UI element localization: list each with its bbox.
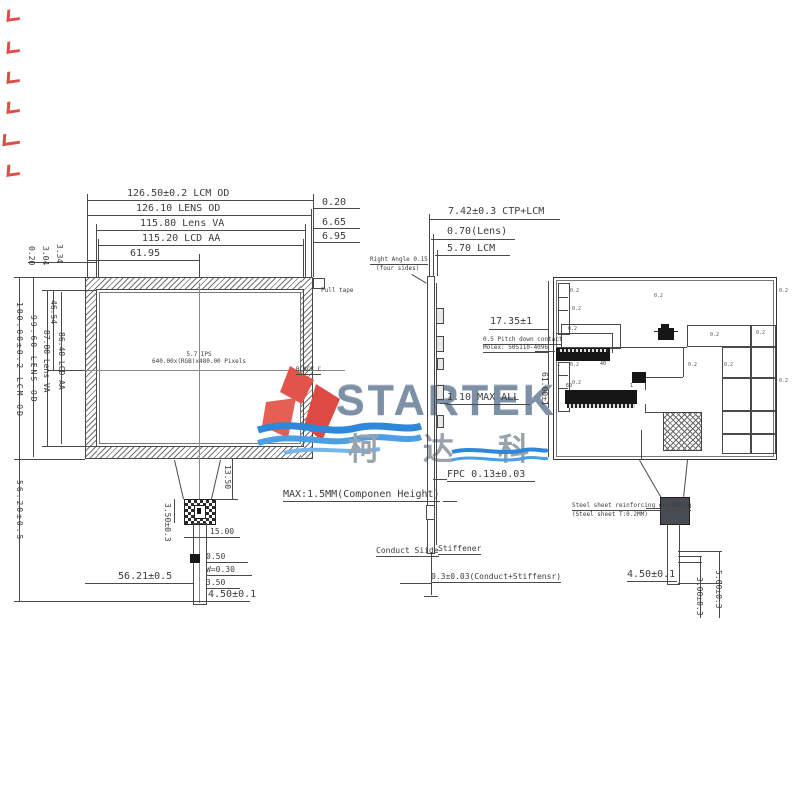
- smd-component-tab: [661, 324, 669, 328]
- note-right-angle: Right Angle 0.15: [370, 256, 428, 265]
- dim-line: [429, 219, 560, 220]
- back-cell: [722, 410, 751, 435]
- back-cell: [751, 410, 776, 435]
- dim-label: 0.20: [27, 246, 36, 265]
- callout-label: 0.2: [779, 378, 788, 384]
- fpc-slant: [174, 460, 184, 499]
- red-mark: [2, 132, 20, 146]
- dim-line: [556, 333, 612, 334]
- pin-label: 1: [557, 362, 560, 368]
- dim-label: 56.20±0.5: [15, 480, 24, 541]
- fpc-conductive-pad: [190, 554, 200, 563]
- dim-label: 17.35±1: [490, 316, 532, 327]
- side-component: [436, 336, 444, 352]
- fpc-slant: [639, 460, 661, 498]
- film-outline: [645, 412, 663, 413]
- witness-line: [433, 234, 434, 276]
- screen-spec-line2: 640.00x(RGB)x480.00 Pixels: [139, 358, 259, 365]
- side-fpc-end: [424, 596, 438, 597]
- dim-label: 100.00±0.2 LCM OD: [15, 302, 24, 418]
- dim-line: [85, 583, 193, 584]
- fpc-slant: [211, 460, 221, 499]
- witness-line: [311, 209, 312, 277]
- dim-label: 3.50±0.3: [163, 503, 172, 542]
- witness-line: [612, 333, 613, 353]
- cell-divider: [558, 297, 568, 298]
- engineering-drawing-canvas: 126.50±0.2 LCM OD 126.10 LENS OD 115.80 …: [0, 0, 800, 800]
- dim-line: [87, 215, 311, 216]
- callout-label: 0.2: [572, 380, 581, 386]
- witness-line: [87, 194, 88, 277]
- dim-label: 6.65: [322, 217, 346, 228]
- pin-label: 40: [600, 361, 606, 367]
- dim-label: 0.70(Lens): [447, 226, 507, 237]
- dim-line: [87, 200, 313, 201]
- dim-label: 3.34: [55, 244, 64, 263]
- witness-line: [303, 239, 304, 277]
- callout-label: 0.2: [710, 332, 719, 338]
- witness-line: [429, 214, 430, 276]
- dim-label: 5.70 LCM: [447, 243, 495, 254]
- smd-component: [632, 372, 646, 383]
- witness-line: [313, 194, 314, 277]
- witness-line: [14, 277, 85, 278]
- dim-label: FPC 0.13±0.03: [447, 469, 535, 482]
- side-component: [437, 415, 444, 428]
- back-cell: [722, 433, 751, 454]
- dim-line: [232, 459, 233, 499]
- film-outline: [641, 430, 642, 460]
- witness-line: [14, 459, 85, 460]
- dim-label: W=0.30: [206, 565, 252, 576]
- dim-label: 3.04: [41, 246, 50, 265]
- red-mark: [6, 8, 20, 22]
- cell-divider: [558, 310, 568, 311]
- dim-label: 7.42±0.3 CTP+LCM: [448, 206, 544, 217]
- dim-line: [314, 208, 360, 209]
- dim-label: 6.95: [322, 231, 346, 242]
- dim-line: [489, 329, 548, 330]
- cell-divider: [558, 375, 568, 376]
- dim-label: 126.50±0.2 LCM OD: [127, 188, 229, 199]
- red-mark: [6, 70, 20, 84]
- dim-label: 126.10 LENS OD: [136, 203, 220, 214]
- dim-line: [96, 230, 305, 231]
- film-outline: [645, 377, 683, 378]
- dim-label: 86.40 LCD AA: [57, 332, 66, 390]
- callout-label: 0.2: [688, 362, 697, 368]
- dim-label: 0.50: [206, 552, 248, 563]
- film-outline: [645, 404, 646, 412]
- dim-line: [184, 537, 240, 538]
- dim-label: 115.20 LCD AA: [142, 233, 220, 244]
- dim-line: [435, 255, 510, 256]
- leader-line: [535, 351, 555, 352]
- dim-label: 13.50: [223, 465, 232, 489]
- back-cell: [751, 325, 776, 347]
- dim-label: 3.00±0.3: [695, 577, 704, 616]
- dim-line: [87, 260, 199, 261]
- witness-line: [678, 556, 702, 557]
- dim-line: [400, 583, 432, 584]
- leader-line: [646, 508, 660, 509]
- dim-line: [14, 601, 250, 602]
- dim-line: [314, 228, 360, 229]
- dim-label: 99.60 LENS OD: [29, 315, 38, 404]
- witness-line: [437, 250, 438, 276]
- smd-pin: [674, 331, 678, 332]
- red-mark: [6, 163, 20, 177]
- leader-line: [411, 274, 426, 284]
- fpc-tail: [193, 523, 207, 605]
- note-component-height: MAX:1.5MM(Componen Height): [283, 489, 440, 502]
- crosshatch-pad: [663, 412, 702, 451]
- smd-component: [658, 328, 674, 340]
- callout-label: 0.2: [779, 288, 788, 294]
- dim-label: 56.21±0.5: [118, 571, 172, 582]
- dim-label: 3.50: [206, 578, 240, 589]
- witness-line: [48, 370, 85, 371]
- note-steel: Steel sheet reinforcing grounding: [572, 502, 691, 511]
- leader-line: [443, 501, 457, 502]
- connector-60pin-pins: [567, 404, 635, 408]
- dim-label: 0.20: [322, 197, 346, 208]
- note-stiffener: Stiffener: [438, 544, 481, 555]
- dim-label: 61.00±1: [540, 372, 549, 406]
- dim-line: [174, 499, 175, 523]
- witness-line: [214, 499, 238, 500]
- callout-label: 0.2: [570, 362, 579, 368]
- fpc-slant: [683, 460, 688, 497]
- callout-label: 0.2: [572, 306, 581, 312]
- dim-line: [431, 239, 515, 240]
- callout-label: 0.2: [756, 330, 765, 336]
- red-mark: [6, 100, 20, 114]
- witness-line: [199, 254, 200, 277]
- note-steel-2: (Steel sheet T:0.2MM): [572, 511, 648, 518]
- dim-line: [98, 245, 303, 246]
- note-conduct-side: Conduct Siide: [376, 546, 439, 557]
- witness-line: [42, 290, 96, 291]
- side-component: [436, 385, 444, 400]
- leader-line: [440, 403, 448, 404]
- logo-small-waves: [450, 444, 550, 464]
- dim-label: 4.50±0.1: [208, 589, 256, 600]
- note-right-angle-2: (four sides): [376, 265, 419, 272]
- pin-label: 1: [630, 383, 633, 389]
- witness-line: [42, 446, 96, 447]
- callout-label: 0.2: [568, 326, 577, 332]
- back-cell: [751, 377, 776, 412]
- callout-label: 0.2: [570, 288, 579, 294]
- note-conduct-stiffener: 0.3±0.03(Conduct+Stiffensr): [431, 572, 561, 583]
- side-component: [436, 308, 444, 324]
- dim-label: 87.00 Lens VA: [42, 330, 51, 393]
- side-fpc-component: [426, 505, 435, 520]
- dim-label: 115.80 Lens VA: [140, 218, 224, 229]
- dim-label: 15.00: [210, 527, 234, 536]
- dim-line: [314, 242, 360, 243]
- screen-spec-line1: 5.7 IPS: [139, 351, 259, 358]
- red-mark: [6, 40, 20, 54]
- dim-label: 4.50±0.1: [627, 569, 677, 582]
- stiffener-dot: [197, 508, 201, 514]
- pull-tape-label: Pull tape: [321, 287, 354, 294]
- screen-spec-label: 5.7 IPS 640.00x(RGB)x480.00 Pixels: [139, 351, 259, 365]
- dim-label: 61.95: [130, 248, 160, 259]
- witness-line: [678, 551, 722, 552]
- witness-line: [305, 224, 306, 277]
- film-outline: [683, 347, 684, 377]
- witness-line: [678, 562, 702, 563]
- side-component: [437, 358, 444, 370]
- callout-label: 0.2: [654, 293, 663, 299]
- dim-label: 46.54: [49, 300, 58, 324]
- back-cell: [751, 433, 776, 454]
- connector-60pin: [565, 390, 637, 404]
- connector-40pin-pins: [558, 349, 608, 352]
- dim-label: 1.10 MAX ALL: [447, 392, 530, 405]
- back-cell: [751, 347, 776, 379]
- dim-label: 5.00±0.3: [714, 570, 723, 609]
- black-mark-label: BLACK C: [296, 366, 321, 375]
- callout-label: 0.2: [724, 362, 733, 368]
- back-cell: [722, 377, 751, 412]
